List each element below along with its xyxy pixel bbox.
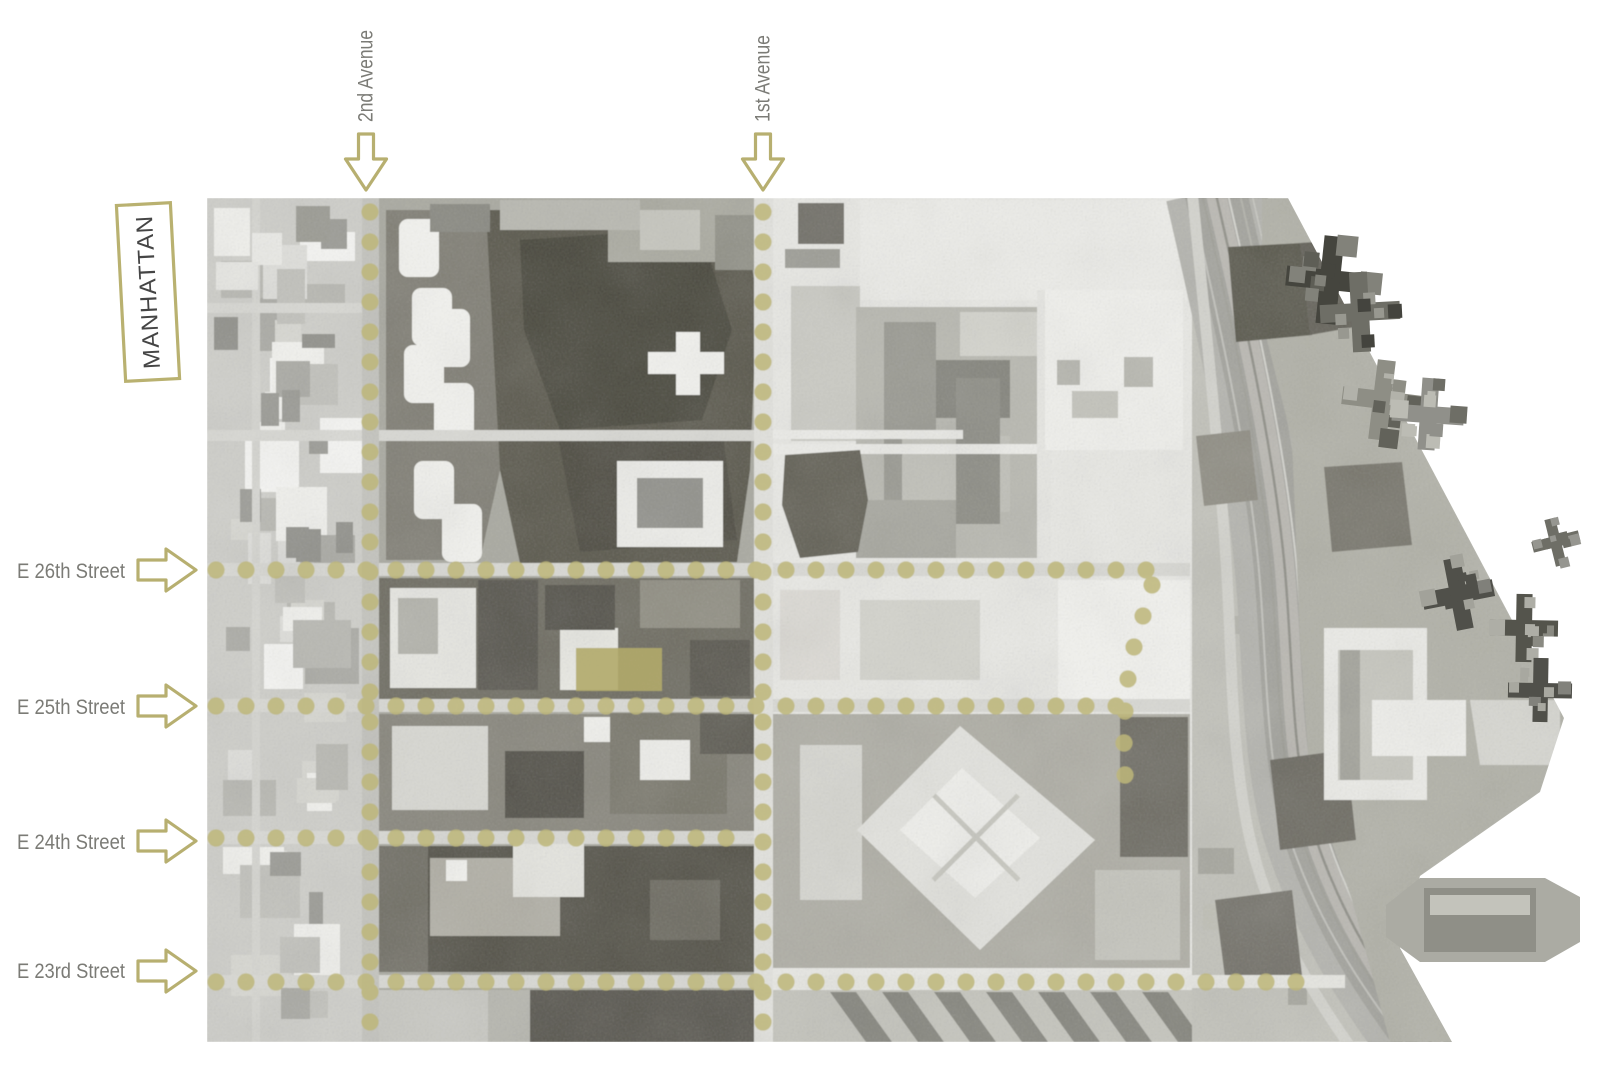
svg-text:E 26th Street: E 26th Street [17,559,125,583]
svg-text:E 23rd Street: E 23rd Street [17,959,125,983]
svg-text:1st Avenue: 1st Avenue [752,35,775,122]
svg-text:E 24th Street: E 24th Street [17,830,125,854]
svg-text:E 25th Street: E 25th Street [17,695,125,719]
svg-text:2nd Avenue: 2nd Avenue [355,30,378,122]
